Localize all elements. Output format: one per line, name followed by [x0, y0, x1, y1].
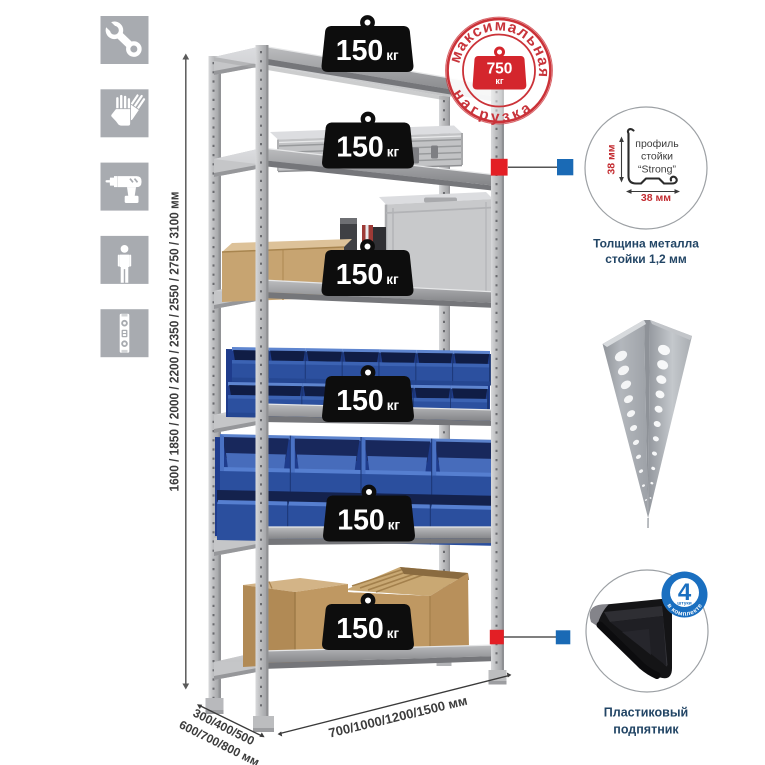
svg-text:стойки: стойки	[641, 151, 673, 163]
svg-text:750: 750	[487, 61, 513, 78]
svg-text:38 мм: 38 мм	[641, 192, 671, 204]
svg-text:стойки 1,2 мм: стойки 1,2 мм	[605, 252, 687, 266]
svg-text:“Strong”: “Strong”	[638, 164, 676, 176]
svg-text:кг: кг	[495, 76, 504, 86]
svg-text:профиль: профиль	[635, 138, 679, 150]
svg-text:1600 / 1850 / 2000 / 2200 / 23: 1600 / 1850 / 2000 / 2200 / 2350 / 2550 …	[167, 192, 182, 492]
svg-text:подпятник: подпятник	[613, 723, 679, 737]
svg-text:Пластиковый: Пластиковый	[604, 706, 688, 720]
svg-text:штуки: штуки	[677, 602, 692, 607]
svg-text:Толщина металла: Толщина металла	[593, 237, 699, 251]
svg-text:38 мм: 38 мм	[606, 144, 618, 174]
